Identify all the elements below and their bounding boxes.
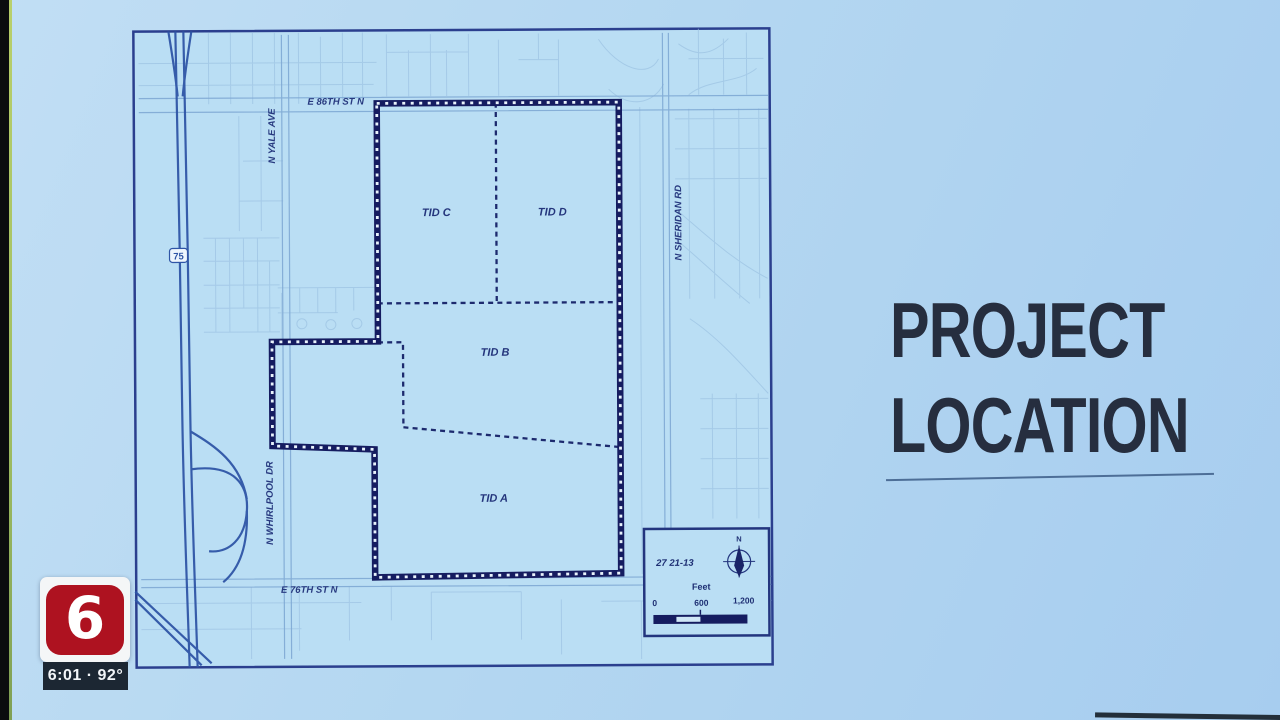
slide-title-line1: PROJECT — [890, 284, 1218, 379]
tid-c-label: TID C — [422, 207, 452, 219]
screen-bottom-edge — [1095, 712, 1280, 720]
scale-bar-segment — [676, 617, 700, 622]
screen-left-edge — [0, 0, 9, 720]
highway-75-shield: 75 — [169, 248, 187, 262]
scale-tick-0: 0 — [652, 598, 657, 608]
tid-a-label: TID A — [480, 493, 508, 505]
station-logo-background: 6 — [46, 585, 124, 655]
time-temperature-text: 6:01 · 92° — [48, 667, 123, 685]
time-temperature-badge: 6:01 · 92° — [43, 662, 128, 690]
street-label-e76: E 76TH ST N — [281, 585, 339, 596]
street-label-e86: E 86TH ST N — [307, 96, 365, 107]
street-label-yale: N YALE AVE — [267, 108, 278, 164]
screen-edge-highlight — [9, 0, 12, 720]
scale-bar — [653, 614, 747, 623]
street-label-sheridan: N SHERIDAN RD — [673, 185, 684, 261]
tid-d-label: TID D — [538, 206, 567, 218]
highway-shield-number: 75 — [173, 251, 184, 262]
title-underline — [886, 473, 1214, 481]
legend-section-number: 27 21-13 — [655, 558, 694, 569]
station-number: 6 — [65, 589, 105, 647]
north-label: N — [736, 534, 741, 543]
station-logo: 6 — [40, 577, 130, 662]
slide-title: PROJECT LOCATION — [890, 284, 1218, 474]
project-location-map: 75 E 86TH ST N N YALE AVE N SHERIDAN RD … — [131, 26, 774, 669]
street-label-whirlpool: N WHIRLPOOL DR — [265, 461, 276, 545]
map-legend: 27 21-13 N Feet 0 600 1,200 — [644, 528, 770, 636]
scale-unit-label: Feet — [692, 582, 711, 592]
slide-title-line2: LOCATION — [890, 379, 1218, 474]
scale-tick-1200: 1,200 — [733, 595, 755, 605]
tid-b-label: TID B — [481, 347, 510, 359]
scale-tick-600: 600 — [694, 598, 709, 608]
